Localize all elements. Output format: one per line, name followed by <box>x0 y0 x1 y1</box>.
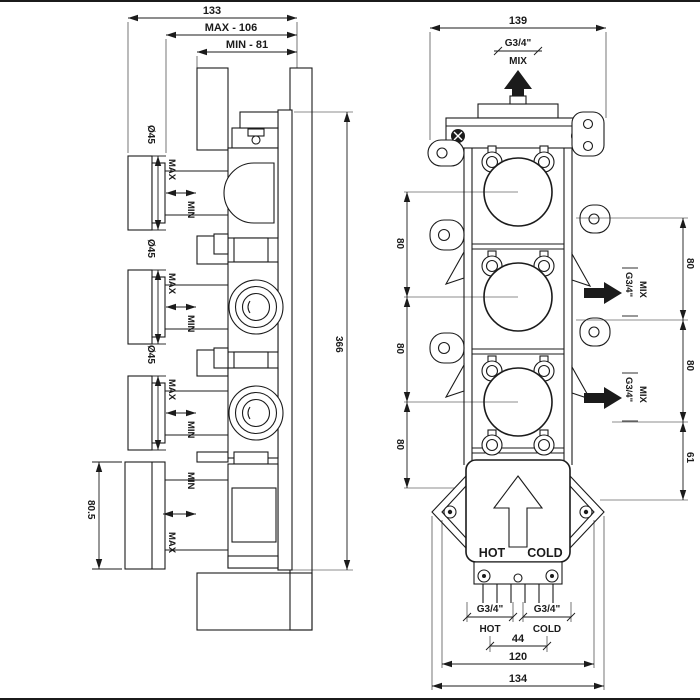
port-spacing-dims-right: 80 80 61 <box>576 218 695 500</box>
cold-port-size-label: G3/4" <box>534 604 561 615</box>
top-mix-label: MIX <box>509 56 527 67</box>
overall-depth-label: 133 <box>203 5 221 17</box>
adjustment-range-labels: MAX MIN MAX MIN MAX MIN MIN MAX <box>163 159 196 554</box>
valve-body-section <box>214 110 292 570</box>
bottom-knob-height-label: 80.5 <box>85 500 96 520</box>
side-mix-outlet-1: G3/4" MIX <box>584 268 648 316</box>
inlet-manifold: HOT COLD <box>432 460 604 603</box>
side-port-size-label-2: G3/4" <box>623 377 634 402</box>
port-spacing-left-3: 80 <box>394 439 405 451</box>
max-label-2: MAX <box>166 273 177 295</box>
side-port-size-label-1: G3/4" <box>623 272 634 297</box>
port-spacing-left-2: 80 <box>394 343 405 355</box>
valve-body-front <box>428 96 610 465</box>
page-border-top <box>0 0 700 2</box>
depth-min-label: MIN - 81 <box>226 39 268 51</box>
hot-port-size-label: G3/4" <box>477 604 504 615</box>
left-view-side-section: Ø45 Ø45 Ø45 MAX MIN MAX MIN MAX MIN MIN … <box>85 5 353 630</box>
port-spacing-left-1: 80 <box>394 238 405 250</box>
side-mix-label-2: MIX <box>637 386 648 404</box>
bottom-port-offset-label: 61 <box>684 452 695 464</box>
max-label-1: MAX <box>166 159 177 181</box>
inlet-spacing-label: 44 <box>512 633 525 645</box>
mounting-width-label: 120 <box>509 651 527 663</box>
knob-dia-dim-1: Ø45 <box>145 125 156 144</box>
body-width-label: 139 <box>509 15 527 27</box>
hot-label: HOT <box>479 546 506 560</box>
port-spacing-right-2: 80 <box>684 360 695 372</box>
max-label-4: MAX <box>166 532 177 554</box>
port-spacing-right-1: 80 <box>684 258 695 270</box>
body-height-label: 366 <box>333 336 344 353</box>
top-port-size-label: G3/4" <box>505 38 532 49</box>
max-label-3: MAX <box>166 379 177 401</box>
side-mix-label-1: MIX <box>637 281 648 299</box>
knob-dia-dim-2: Ø45 <box>145 239 156 258</box>
bottom-knob-height-dim: 80.5 <box>85 462 122 569</box>
hot-port-label: HOT <box>479 624 500 635</box>
min-label-1: MIN <box>185 201 196 219</box>
body-height-dim: 366 <box>284 112 353 570</box>
min-label-2: MIN <box>185 315 196 333</box>
knob-dia-dim-3: Ø45 <box>145 345 156 364</box>
cold-port-label: COLD <box>533 624 561 635</box>
overall-width-label: 134 <box>509 673 528 685</box>
cold-label: COLD <box>527 546 562 560</box>
technical-drawing: Ø45 Ø45 Ø45 MAX MIN MAX MIN MAX MIN MIN … <box>0 0 700 700</box>
min-label-4: MIN <box>185 472 196 490</box>
depth-max-label: MAX - 106 <box>205 22 258 34</box>
mix-flow-arrow-right-icon-2 <box>584 387 622 409</box>
min-label-3: MIN <box>185 421 196 439</box>
side-mix-outlet-2: G3/4" MIX <box>584 373 648 421</box>
right-view-front: 139 G3/4" MIX <box>394 15 695 690</box>
